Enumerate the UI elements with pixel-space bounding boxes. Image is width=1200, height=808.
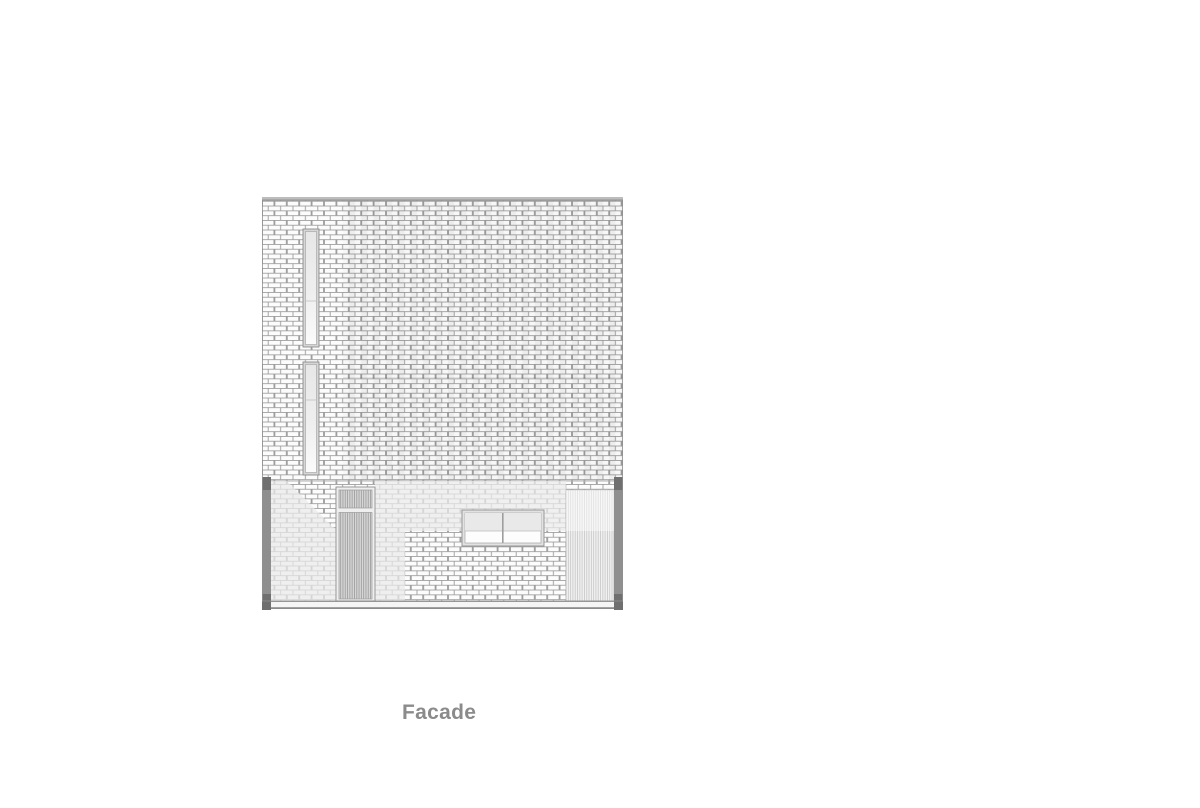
brick-texture-shaded-area — [343, 200, 623, 481]
facade-elevation-svg — [262, 196, 623, 611]
right-column — [614, 477, 623, 610]
louvered-screen — [566, 490, 614, 601]
canvas: Facade — [0, 0, 1200, 808]
louvered-entry-door — [336, 487, 375, 601]
base-plinth — [271, 601, 614, 609]
ground-floor-window — [462, 510, 544, 546]
upper-slot-window — [303, 229, 319, 347]
facade-label: Facade — [402, 701, 476, 725]
left-column — [262, 477, 271, 610]
facade-elevation-drawing — [262, 196, 623, 611]
roof-coping — [262, 197, 623, 200]
lower-slot-window — [303, 362, 319, 475]
